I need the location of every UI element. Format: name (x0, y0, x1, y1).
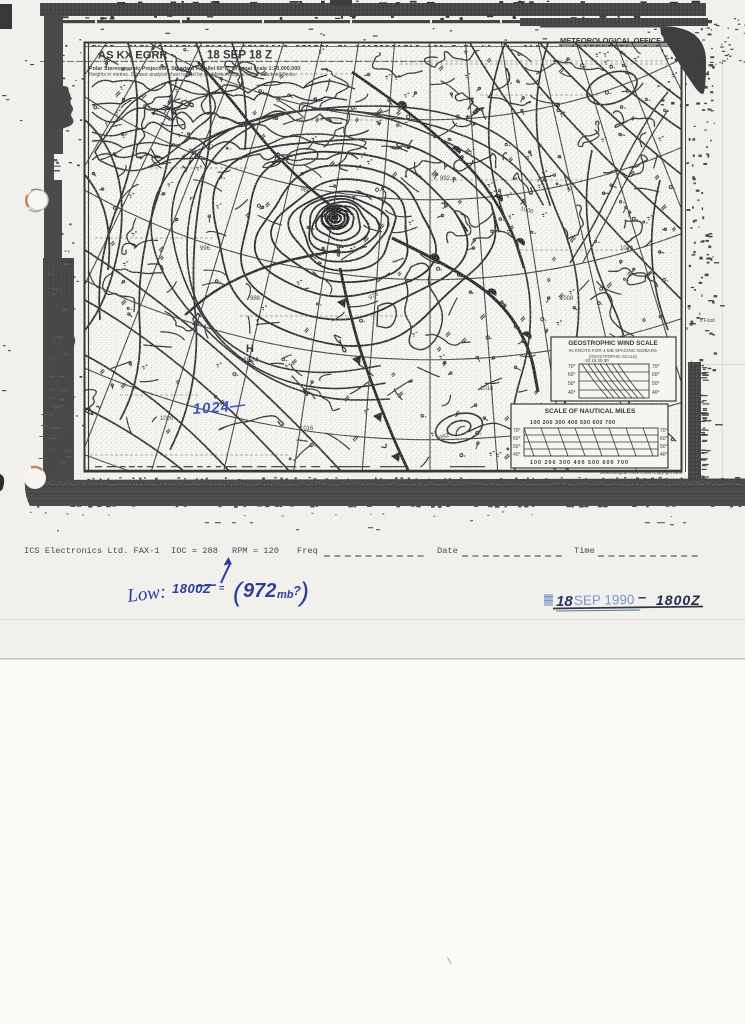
svg-text:100 200 300 400 500 600 700: 100 200 300 400 500 600 700 (530, 420, 615, 426)
svg-text:70°: 70° (660, 428, 668, 434)
svg-text:40°: 40° (652, 390, 660, 396)
svg-text:RPM = 120: RPM = 120 (232, 546, 279, 556)
svg-text:GEOSTROPHIC WIND SCALE: GEOSTROPHIC WIND SCALE (568, 340, 658, 347)
svg-text:SCALE OF NAUTICAL MILES: SCALE OF NAUTICAL MILES (545, 408, 636, 415)
svg-text:Date: Date (437, 546, 458, 556)
svg-text:70°: 70° (652, 364, 660, 370)
svg-text:60°: 60° (652, 372, 660, 378)
svg-text:70°: 70° (568, 364, 576, 370)
svg-text:50°: 50° (568, 381, 576, 387)
svg-text:70°: 70° (513, 428, 521, 434)
svg-text:ICS Electronics Ltd. FAX-1: ICS Electronics Ltd. FAX-1 (24, 546, 160, 556)
svg-text:IN KNOTS FOR 4 MB SPACING ISOB: IN KNOTS FOR 4 MB SPACING ISOBARS (569, 348, 657, 353)
svg-text:s Fssd: s Fssd (700, 318, 715, 324)
svg-text:10 15 20 30: 10 15 20 30 (585, 358, 609, 363)
svg-text:60°: 60° (660, 436, 668, 442)
svg-text:Meteorological Office Crown C: Meteorological Office Crown Copyright 19… (600, 470, 683, 475)
svg-text:IOC = 288: IOC = 288 (171, 546, 218, 556)
svg-text:40°: 40° (568, 390, 576, 396)
svg-text:1800Z: 1800Z (656, 592, 701, 608)
svg-text:Freq: Freq (297, 546, 318, 556)
svg-text:=: = (219, 583, 224, 593)
svg-text:SEP 1990: SEP 1990 (574, 592, 635, 608)
svg-text:18 SEP 18 Z: 18 SEP 18 Z (207, 50, 272, 62)
svg-text:Time: Time (574, 546, 595, 556)
svg-text:AS KX EGRR: AS KX EGRR (98, 50, 168, 62)
svg-text:Heights in metres. Surface ana: Heights in metres. Surface analysis char… (89, 72, 296, 78)
svg-text:60°: 60° (513, 436, 521, 442)
svg-text:mb: mb (277, 589, 294, 601)
svg-text:50°: 50° (652, 381, 660, 387)
svg-text:50°: 50° (660, 444, 668, 450)
svg-text:100 200 300 400 500 600: 100 200 300 400 500 600 700 (530, 460, 629, 466)
svg-text:1024: 1024 (192, 398, 230, 418)
svg-text:50°: 50° (513, 444, 521, 450)
svg-text:972: 972 (243, 580, 276, 602)
svg-text:40°: 40° (513, 452, 521, 458)
svg-text:1800Z: 1800Z (172, 581, 212, 596)
svg-text:40°: 40° (660, 452, 668, 458)
svg-text:60°: 60° (568, 372, 576, 378)
svg-text:–: – (638, 589, 646, 606)
